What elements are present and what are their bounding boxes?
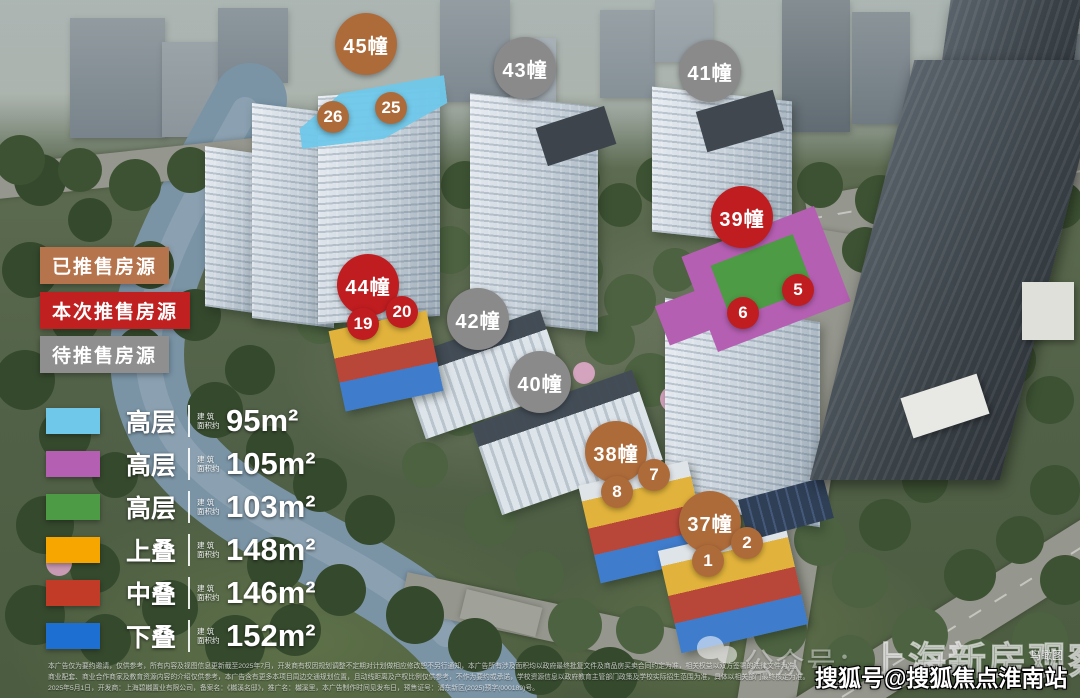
legend-note: 建 筑面积约 — [197, 455, 223, 473]
legend-type-label: 高层 — [126, 489, 184, 525]
legend-row: 高层 建 筑面积约 103m² — [46, 494, 316, 520]
legend-note: 建 筑面积约 — [197, 627, 223, 645]
building-badge-43: 43幢 — [494, 37, 556, 99]
legend-area-value: 152m² — [226, 618, 316, 654]
legend-note: 建 筑面积约 — [197, 412, 223, 430]
unit-badge-label: 26 — [324, 107, 343, 127]
color-swatch — [46, 580, 100, 606]
unit-badge-26: 26 — [317, 101, 349, 133]
legend-note-line: 面积约 — [197, 421, 223, 430]
status-legend-item-sold: 已推售房源 — [40, 247, 169, 284]
legend-row: 下叠 建 筑面积约 152m² — [46, 623, 316, 649]
unit-badge-2: 2 — [731, 527, 763, 559]
legend-type-label: 高层 — [126, 403, 184, 439]
unit-badge-25: 25 — [375, 92, 407, 124]
unit-badge-label: 2 — [742, 533, 751, 553]
building-badge-label: 37幢 — [687, 508, 732, 537]
unit-badge-label: 19 — [354, 314, 373, 334]
legend-divider — [188, 491, 190, 523]
legend-type-label: 上叠 — [126, 532, 184, 568]
legend-note: 建 筑面积约 — [197, 498, 223, 516]
legend-area-value: 146m² — [226, 575, 316, 611]
legend-note-line: 建 筑 — [197, 412, 223, 421]
legend-note-line: 面积约 — [197, 464, 223, 473]
status-legend-item-pending: 待推售房源 — [40, 336, 169, 373]
legend-note-line: 面积约 — [197, 550, 223, 559]
building-badge-39: 39幢 — [711, 186, 773, 248]
legend-note-line: 面积约 — [197, 593, 223, 602]
unit-badge-20: 20 — [386, 296, 418, 328]
unit-badge-7: 7 — [638, 459, 670, 491]
building-badge-label: 40幢 — [517, 368, 562, 397]
unit-badge-label: 5 — [793, 280, 802, 300]
site-aerial-view: 45幢 43幢 41幢 39幢 44幢 42幢 40幢 38幢 37幢 26 2… — [0, 0, 1080, 698]
status-legend-item-current: 本次推售房源 — [40, 292, 190, 329]
building-badge-40: 40幢 — [509, 351, 571, 413]
legend-divider — [188, 620, 190, 652]
color-swatch — [46, 451, 100, 477]
legend-divider — [188, 577, 190, 609]
building-badge-label: 39幢 — [719, 203, 764, 232]
building-badge-label: 45幢 — [343, 30, 388, 59]
building-badge-label: 38幢 — [593, 438, 638, 467]
legend-type-label: 高层 — [126, 446, 184, 482]
color-swatch — [46, 537, 100, 563]
color-swatch — [46, 623, 100, 649]
unit-badge-5: 5 — [782, 274, 814, 306]
small-building — [1022, 282, 1074, 340]
legend-area-value: 105m² — [226, 446, 316, 482]
legend-row: 高层 建 筑面积约 95m² — [46, 408, 316, 434]
legend-note-line: 建 筑 — [197, 455, 223, 464]
legend-divider — [188, 405, 190, 437]
building-badge-label: 41幢 — [687, 57, 732, 86]
legend-note: 建 筑面积约 — [197, 541, 223, 559]
unit-badge-8: 8 — [601, 476, 633, 508]
legend-note-line: 面积约 — [197, 636, 223, 645]
building-badge-42: 42幢 — [447, 288, 509, 350]
legend-row: 上叠 建 筑面积约 148m² — [46, 537, 316, 563]
legend-area-value: 95m² — [226, 403, 298, 439]
legend-divider — [188, 448, 190, 480]
unit-badge-label: 1 — [703, 551, 712, 571]
disclaimer-line: 商业配套、商业合作商家及教育资源内容的介绍仅供参考，本广告含有更多本项目周边交通… — [48, 672, 1048, 683]
disclaimer-line: 2025年5月1日，开发商：上海碧樾置业有限公司，备案名：《樾溪名邸》，推广名：… — [48, 683, 1048, 694]
unit-badge-19: 19 — [347, 308, 379, 340]
legend-area-value: 148m² — [226, 532, 316, 568]
unit-badge-label: 7 — [649, 465, 658, 485]
legend-note-line: 面积约 — [197, 507, 223, 516]
legend-note: 建 筑面积约 — [197, 584, 223, 602]
legend-divider — [188, 534, 190, 566]
unit-badge-6: 6 — [727, 297, 759, 329]
building-badge-label: 43幢 — [502, 54, 547, 83]
legend-row: 中叠 建 筑面积约 146m² — [46, 580, 316, 606]
legend-note-line: 建 筑 — [197, 584, 223, 593]
legend-type-label: 中叠 — [126, 575, 184, 611]
type-legend: 高层 建 筑面积约 95m² 高层 建 筑面积约 105m² 高层 建 筑面积约… — [46, 408, 316, 649]
disclaimer: 本广告仅为要约邀请，仅供参考，所有内容及视图信息更新截至2025年7月，开发商有… — [48, 661, 1048, 694]
color-swatch — [46, 494, 100, 520]
disclaimer-line: 本广告仅为要约邀请，仅供参考，所有内容及视图信息更新截至2025年7月，开发商有… — [48, 661, 1048, 672]
blossom-trees — [0, 0, 22, 22]
unit-badge-label: 20 — [393, 302, 412, 322]
legend-area-value: 103m² — [226, 489, 316, 525]
unit-badge-label: 25 — [382, 98, 401, 118]
legend-note-line: 建 筑 — [197, 627, 223, 636]
legend-type-label: 下叠 — [126, 618, 184, 654]
color-swatch — [46, 408, 100, 434]
legend-row: 高层 建 筑面积约 105m² — [46, 451, 316, 477]
building-badge-41: 41幢 — [679, 40, 741, 102]
unit-badge-label: 8 — [612, 482, 621, 502]
building-badge-label: 44幢 — [345, 271, 390, 300]
legend-note-line: 建 筑 — [197, 541, 223, 550]
building-badge-45: 45幢 — [335, 13, 397, 75]
legend-note-line: 建 筑 — [197, 498, 223, 507]
unit-badge-1: 1 — [692, 545, 724, 577]
unit-badge-label: 6 — [738, 303, 747, 323]
building-badge-label: 42幢 — [455, 305, 500, 334]
